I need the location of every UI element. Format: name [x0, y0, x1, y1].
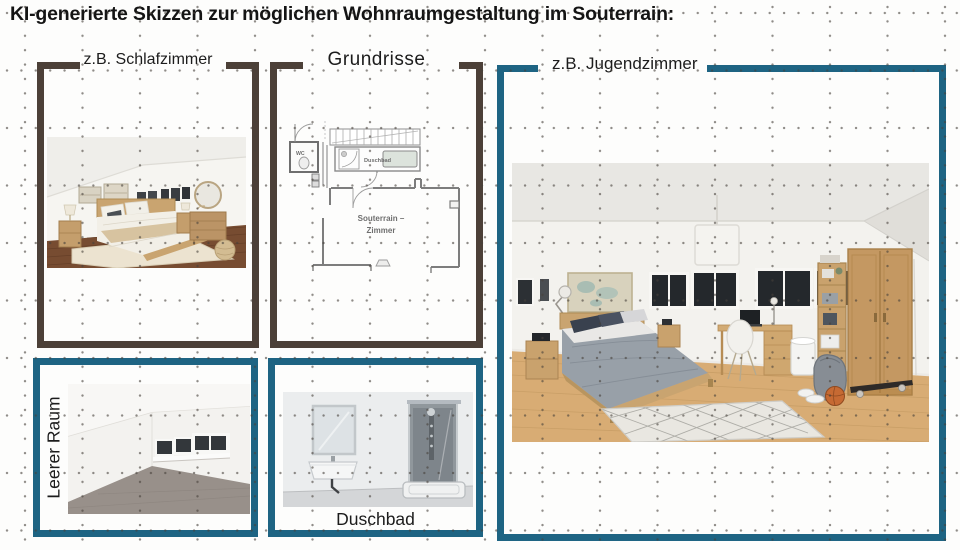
leerer-raum-photo — [68, 384, 250, 514]
plan-room-label-line1: Souterrain – — [358, 214, 405, 223]
frame-border-segment — [277, 62, 303, 69]
plan-wc-label: WC — [296, 151, 305, 157]
schlafzimmer-photo — [47, 137, 246, 268]
leerer-raum-frame: Leerer Raum — [33, 358, 258, 537]
frame-border-segment — [707, 65, 939, 72]
plan-bath-label: Duschbad — [364, 158, 392, 164]
frame-border-segment — [44, 62, 80, 69]
frame-border-segment — [504, 65, 538, 72]
worksheet-page: KI-generierte Skizzen zur möglichen Wohn… — [0, 0, 960, 550]
duschbad-label: Duschbad — [275, 509, 476, 530]
schlafzimmer-frame: z.B. Schlafzimmer — [37, 62, 259, 348]
frame-border-segment — [459, 62, 476, 69]
grundrisse-label: Grundrisse — [328, 49, 426, 71]
grundrisse-frame: Grundrisse — [270, 62, 483, 348]
schlafzimmer-label: z.B. Schlafzimmer — [84, 51, 213, 69]
frame-border-segment — [226, 62, 252, 69]
jugendzimmer-label: z.B. Jugendzimmer — [552, 54, 698, 74]
leerer-raum-label-wrap: Leerer Raum — [40, 379, 68, 516]
leerer-raum-label: Leerer Raum — [44, 396, 65, 498]
page-title: KI-generierte Skizzen zur möglichen Wohn… — [10, 3, 674, 26]
jugendzimmer-frame: z.B. Jugendzimmer — [497, 65, 946, 541]
jugendzimmer-photo — [512, 163, 929, 442]
floorplan-drawing: Duschbad WC — [283, 115, 476, 290]
plan-room-label-line2: Zimmer — [367, 226, 396, 235]
duschbad-frame: Duschbad — [268, 358, 483, 537]
duschbad-photo — [283, 392, 473, 507]
